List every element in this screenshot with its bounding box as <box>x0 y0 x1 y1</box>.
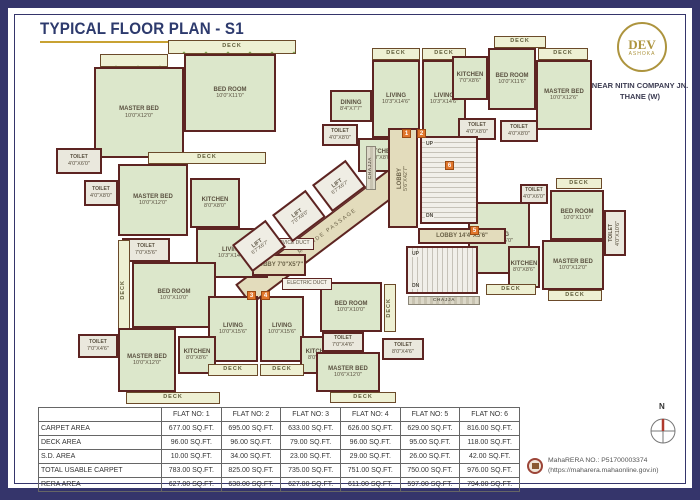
table-header <box>39 408 162 422</box>
area-value: 96.00 SQ.FT. <box>221 436 281 450</box>
chajja-chajja: CHAJJA <box>408 296 480 305</box>
deck-deck: DECK <box>556 178 602 189</box>
master-bed-room: MASTER BED10'0"X12'0" <box>118 328 176 392</box>
area-value: 794.00 SQ.FT. <box>460 478 520 492</box>
table-header: FLAT NO: 3 <box>281 408 341 422</box>
kitchen-kitchen: KITCHEN8'0"X8'6" <box>508 246 540 288</box>
chajja-chajja: CHAJJA <box>366 146 376 190</box>
rera-note: MahaRERA NO.: P51700003374 (https://maha… <box>548 456 659 476</box>
rera-number: MahaRERA NO.: P51700003374 <box>548 456 659 466</box>
master-bed-room: MASTER BED10'0"X12'0" <box>94 67 184 158</box>
deck-deck: DECK <box>148 152 266 164</box>
deck-deck: DECK <box>260 364 304 376</box>
area-value: 629.00 SQ.FT. <box>400 422 460 436</box>
maharera-logo-icon <box>527 458 543 474</box>
rera-url: (https://maharera.mahaonline.gov.in) <box>548 466 659 476</box>
deck-deck: DECK <box>372 48 420 60</box>
table-header: FLAT NO: 6 <box>460 408 520 422</box>
toilet-toilet: TOILET8'0"X4'6" <box>382 338 424 360</box>
flat-number-marker: 2 <box>417 129 426 138</box>
area-value: 611.00 SQ.FT. <box>340 478 400 492</box>
staircase: UPDN <box>406 246 478 294</box>
area-value: 95.00 SQ.FT. <box>400 436 460 450</box>
row-label: RERA AREA <box>39 478 162 492</box>
bed-room-room: BED ROOM10'0"X11'0" <box>184 54 276 132</box>
area-value: 23.00 SQ.FT. <box>281 450 341 464</box>
flat-number-marker: 4 <box>261 291 270 300</box>
area-value: 677.00 SQ.FT. <box>162 422 222 436</box>
deck-deck: DECK <box>168 40 296 54</box>
row-label: S.D. AREA <box>39 450 162 464</box>
area-value: 816.00 SQ.FT. <box>460 422 520 436</box>
master-bed-room: MASTER BED10'0"X12'6" <box>536 60 592 130</box>
table-row: DECK AREA96.00 SQ.FT.96.00 SQ.FT.79.00 S… <box>39 436 520 450</box>
master-bed-room: MASTER BED10'0"X12'0" <box>118 164 188 236</box>
electric-duct-duct: ELECTRIC DUCT <box>282 278 332 290</box>
area-value: 42.00 SQ.FT. <box>460 450 520 464</box>
bed-room-room: BED ROOM10'0"X11'0" <box>550 190 604 240</box>
toilet-toilet: TOILET7'0"X4'6" <box>322 332 364 352</box>
row-label: DECK AREA <box>39 436 162 450</box>
flat-number-marker: 6 <box>445 161 454 170</box>
deck-deck: DECK <box>486 284 536 295</box>
row-label: CARPET AREA <box>39 422 162 436</box>
area-value: 29.00 SQ.FT. <box>340 450 400 464</box>
area-value: 26.00 SQ.FT. <box>400 450 460 464</box>
deck-deck: DECK <box>126 392 220 404</box>
area-value: 695.00 SQ.FT. <box>221 422 281 436</box>
compass-icon: N <box>646 402 682 450</box>
area-value: 825.00 SQ.FT. <box>221 464 281 478</box>
staircase: UPDN <box>420 136 478 224</box>
toilet-toilet: TOILET4'0"X8'0" <box>500 120 538 142</box>
area-value: 783.00 SQ.FT. <box>162 464 222 478</box>
area-value: 34.00 SQ.FT. <box>221 450 281 464</box>
flat-number-marker: 3 <box>247 291 256 300</box>
living-room: LIVING10'3"X14'6" <box>372 60 420 138</box>
area-value: 627.00 SQ.FT. <box>281 478 341 492</box>
area-value: 633.00 SQ.FT. <box>281 422 341 436</box>
deck-deck: DECK <box>384 284 396 332</box>
deck-deck: DECK <box>494 36 546 48</box>
table-header: FLAT NO: 5 <box>400 408 460 422</box>
area-value: 976.00 SQ.FT. <box>460 464 520 478</box>
area-value: 597.00 SQ.FT. <box>400 478 460 492</box>
toilet-toilet: TOILET4'0"X8'0" <box>84 180 118 206</box>
master-bed-room: MASTER BED10'0"X12'0" <box>542 240 604 290</box>
flat-number-marker: 5 <box>470 226 479 235</box>
area-value: 626.00 SQ.FT. <box>340 422 400 436</box>
table-header: FLAT NO: 2 <box>221 408 281 422</box>
deck-deck: DECK <box>118 240 130 340</box>
toilet-toilet: TOILET4'0"X6'0" <box>56 148 102 174</box>
living-room: LIVING10'0"X15'6" <box>260 296 304 362</box>
table-header: FLAT NO: 1 <box>162 408 222 422</box>
lobby-core: LOBBY5'6"X42'7" <box>388 128 418 228</box>
toilet-toilet: TOILET4'0"X8'0" <box>322 124 358 146</box>
row-label: TOTAL USABLE CARPET <box>39 464 162 478</box>
bed-room-room: BED ROOM10'0"X11'6" <box>488 48 536 110</box>
area-value: 118.00 SQ.FT. <box>460 436 520 450</box>
table-row: CARPET AREA677.00 SQ.FT.695.00 SQ.FT.633… <box>39 422 520 436</box>
toilet-toilet: TOILET4'0"X6'0" <box>520 184 548 204</box>
deck-deck: DECK <box>548 290 602 301</box>
kitchen-kitchen: KITCHEN8'0"X8'0" <box>190 178 240 228</box>
area-table: FLAT NO: 1FLAT NO: 2FLAT NO: 3FLAT NO: 4… <box>38 407 520 492</box>
area-value: 79.00 SQ.FT. <box>281 436 341 450</box>
area-value: 96.00 SQ.FT. <box>162 436 222 450</box>
deck-deck: DECK <box>330 392 396 403</box>
flat-number-marker: 1 <box>402 129 411 138</box>
kitchen-kitchen: KITCHEN7'0"X8'6" <box>452 56 488 100</box>
toilet-toilet: TOILET7'0"X4'6" <box>78 334 118 358</box>
dining-room: DINING8'4"X7'7" <box>330 90 372 122</box>
table-row: TOTAL USABLE CARPET783.00 SQ.FT.825.00 S… <box>39 464 520 478</box>
area-value: 627.00 SQ.FT. <box>162 478 222 492</box>
deck-deck: DECK <box>538 48 588 60</box>
area-value: 96.00 SQ.FT. <box>340 436 400 450</box>
master-bed-room: MASTER BED10'6"X12'0" <box>316 352 380 392</box>
deck-deck: DECK <box>208 364 258 376</box>
area-value: 10.00 SQ.FT. <box>162 450 222 464</box>
deck-strip-deck <box>100 54 168 67</box>
table-row: S.D. AREA10.00 SQ.FT.34.00 SQ.FT.23.00 S… <box>39 450 520 464</box>
table-header: FLAT NO: 4 <box>340 408 400 422</box>
toilet-toilet: TOILET4'0"X10'6" <box>604 210 626 256</box>
area-value: 638.00 SQ.FT. <box>221 478 281 492</box>
area-value: 750.00 SQ.FT. <box>400 464 460 478</box>
area-value: 735.00 SQ.FT. <box>281 464 341 478</box>
table-row: RERA AREA627.00 SQ.FT.638.00 SQ.FT.627.0… <box>39 478 520 492</box>
area-value: 751.00 SQ.FT. <box>340 464 400 478</box>
compass-north-label: N <box>659 402 665 411</box>
lobby-14-4-x5-6-core: LOBBY 14'4"X5'6" <box>418 228 506 244</box>
bed-room-room: BED ROOM10'0"X10'0" <box>132 262 216 328</box>
